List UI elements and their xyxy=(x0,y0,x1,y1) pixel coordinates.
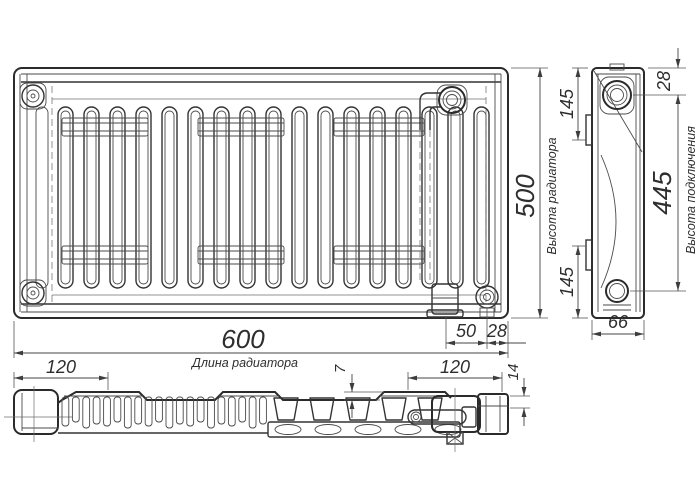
convector-fin xyxy=(176,397,183,424)
wide-fin xyxy=(418,398,442,420)
fin-inner xyxy=(191,111,200,284)
fin-inner xyxy=(217,111,226,284)
fin xyxy=(318,107,333,288)
dim-pipe-edge-value: 28 xyxy=(486,321,507,341)
convector-fin xyxy=(104,397,111,426)
dim-top-offset-value: 28 xyxy=(654,71,674,92)
fin xyxy=(136,107,151,288)
fin-inner xyxy=(269,111,278,284)
fin-inner xyxy=(373,111,382,284)
dim-connection-label: Высота подключения xyxy=(684,126,698,254)
fin xyxy=(188,107,203,288)
dim-length-label: Длина радиатора xyxy=(190,356,298,370)
fin xyxy=(110,107,125,288)
fin xyxy=(84,107,99,288)
fin-clip xyxy=(198,118,284,136)
bottom-fins-fine xyxy=(62,397,266,428)
dim-bracket-bottom-value: 145 xyxy=(557,266,577,297)
fin xyxy=(396,107,411,288)
convector-fin xyxy=(83,397,90,428)
side-view xyxy=(586,64,644,318)
dim-depth-value: 66 xyxy=(608,312,629,332)
fin-inner xyxy=(113,111,122,284)
convector-fin xyxy=(218,397,225,424)
dim-fin-step-value: 7 xyxy=(332,364,349,373)
fin-inner xyxy=(295,111,304,284)
rail-hole xyxy=(355,425,381,435)
dim-length-value: 600 xyxy=(221,324,265,354)
fin-clip xyxy=(62,118,148,136)
fin-inner xyxy=(165,111,174,284)
dim-pipe-spacing-value: 50 xyxy=(456,321,476,341)
fin xyxy=(240,107,255,288)
convector-fin xyxy=(93,397,100,424)
convector-fin xyxy=(249,397,256,428)
fin-inner xyxy=(243,111,252,284)
dim-bracket-right: 120 xyxy=(408,357,502,392)
fin-inner xyxy=(451,111,460,284)
fin-inner xyxy=(425,111,434,284)
dim-top-offset: 28 xyxy=(648,48,686,92)
dim-pipes: 50 28 xyxy=(446,309,526,349)
fin xyxy=(370,107,385,288)
fin-clip xyxy=(198,246,284,264)
fin-inner xyxy=(399,111,408,284)
fin-inner xyxy=(87,111,96,284)
convector-fin xyxy=(187,397,194,426)
convector-fin xyxy=(135,397,142,424)
fin xyxy=(58,107,73,288)
dim-bracket-right-value: 120 xyxy=(440,357,470,377)
convector-fin xyxy=(72,397,79,422)
convector-fin xyxy=(124,397,131,428)
mount-washer-bottom xyxy=(20,280,46,306)
fin-inner xyxy=(321,111,330,284)
dim-bracket-bottom: 145 xyxy=(557,246,588,318)
radiator-technical-drawing: 600 Длина радиатора 50 28 500 Высота рад… xyxy=(0,0,700,500)
fin xyxy=(214,107,229,288)
side-port-bottom xyxy=(603,280,631,310)
fin xyxy=(474,107,489,288)
dim-stub-height-value: 14 xyxy=(505,364,522,381)
mount-washer-top xyxy=(20,83,46,109)
fin xyxy=(344,107,359,288)
dim-bracket-top-value: 145 xyxy=(557,88,577,119)
rail-hole xyxy=(275,425,301,435)
convector-fin xyxy=(228,397,235,426)
convector-fin xyxy=(114,397,121,422)
side-port-top xyxy=(603,81,631,109)
rail-hole xyxy=(315,425,341,435)
bottom-view xyxy=(4,386,508,452)
fin xyxy=(448,107,463,288)
wide-fin xyxy=(274,398,298,420)
dim-bracket-top: 145 xyxy=(557,68,588,140)
radiator-drawing-page: 600 Длина радиатора 50 28 500 Высота рад… xyxy=(0,0,700,500)
fin xyxy=(162,107,177,288)
wide-fin xyxy=(310,398,334,420)
fin-inner xyxy=(347,111,356,284)
fin xyxy=(266,107,281,288)
bottom-fins-wide xyxy=(274,398,442,420)
dim-bracket-left: 120 xyxy=(14,357,108,390)
rail-hole xyxy=(395,425,421,435)
fin-inner xyxy=(477,111,486,284)
dim-depth: 66 xyxy=(592,312,644,340)
dim-fin-step: 7 xyxy=(332,364,384,418)
fin-clip xyxy=(62,246,148,264)
fin-inner xyxy=(139,111,148,284)
wide-fin xyxy=(346,398,370,420)
dim-connection-value: 445 xyxy=(647,171,677,215)
wide-fin xyxy=(382,398,406,420)
convector-fin xyxy=(239,397,246,422)
convector-fin xyxy=(62,397,69,426)
dim-height: 500 Высота радиатора xyxy=(510,68,559,318)
convector-fin xyxy=(166,397,173,428)
fin xyxy=(292,107,307,288)
convector-fin xyxy=(208,397,215,428)
convector-fin xyxy=(260,397,267,424)
dim-length: 600 Длина радиатора xyxy=(14,321,508,370)
front-view xyxy=(14,68,508,318)
dim-height-label: Высота радиатора xyxy=(545,137,559,254)
dim-height-value: 500 xyxy=(510,174,540,218)
convector-fin xyxy=(145,397,152,426)
dim-bracket-left-value: 120 xyxy=(46,357,76,377)
